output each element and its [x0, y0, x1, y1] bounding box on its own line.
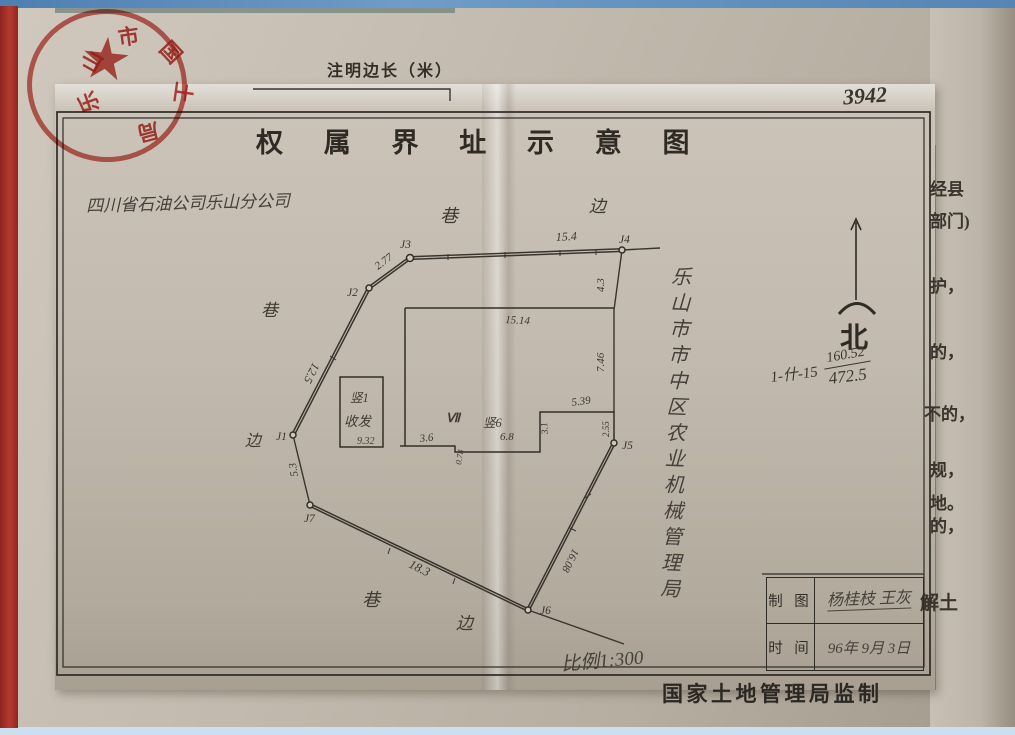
point-label-j1: J1	[276, 431, 287, 443]
seal-char: 局	[135, 118, 161, 144]
small-building-label2: 收发	[344, 414, 372, 429]
header-note: 注明边长（米）	[327, 57, 453, 81]
margin-fragment: 解土	[920, 588, 958, 615]
edge-label-2-55: 2.55	[601, 421, 611, 437]
header-bracket-line	[253, 89, 450, 101]
margin-fragment: 规，	[930, 456, 964, 481]
edge-labels: 12.5 2.77 15.4 4.3 15.14 7.46 5.39 2.55 …	[287, 229, 611, 579]
margin-fragment: 部门)	[930, 207, 970, 232]
seal-char: 土	[170, 81, 194, 105]
street-label-left-side: 边	[245, 432, 263, 450]
point-label-j7: J7	[304, 513, 316, 525]
north-arrow	[839, 219, 875, 314]
point-label-j5: J5	[622, 440, 633, 452]
point-label-j4: J4	[619, 234, 630, 246]
table-value-drafter: 杨桂枝 王灰	[827, 590, 912, 612]
edge-label-j5j6: 16.08	[559, 547, 581, 575]
title-block-table: 制 图 杨桂枝 王灰 时 间 96年 9月 3日	[766, 577, 924, 671]
scanned-document-photo: J1 J2 J3 J4 J5 J6 J7 12.5 2.77 15.4 4.3 …	[0, 0, 1015, 735]
margin-fragment: 的，	[930, 338, 964, 363]
table-label-drafter: 制 图	[767, 578, 815, 624]
table-value-date: 96年 9月 3日	[828, 637, 911, 658]
point-label-j3: J3	[400, 239, 411, 251]
seal-char: 市	[117, 26, 141, 50]
street-label-bottom-lane: 巷	[362, 590, 382, 610]
calc-fraction: 160.52 472.5	[821, 346, 872, 387]
edge-label-3-6: 3.6	[418, 432, 434, 446]
edge-label-j7j1: 5.3	[287, 461, 301, 477]
point-labels: J1 J2 J3 J4 J5 J6 J7	[276, 234, 633, 617]
point-label-j2: J2	[347, 287, 358, 299]
edge-label-rect-right: 7.46	[595, 352, 607, 372]
street-label-left-lane: 巷	[261, 301, 280, 320]
street-label-bottom-side: 边	[456, 614, 475, 633]
street-label-top-side: 边	[589, 197, 608, 216]
left-party-name: 四川省石油公司乐山分公司	[86, 186, 291, 216]
seal-char: 乐	[76, 88, 103, 115]
edge-label-rect-top: 15.14	[505, 314, 531, 327]
small-building-label1: 竖1	[350, 391, 369, 405]
margin-fragment: 的，	[930, 512, 964, 537]
edge-label-j3j4: 15.4	[555, 229, 577, 244]
big-building-label: 竖6	[483, 416, 503, 430]
edge-label-5-39: 5.39	[571, 394, 592, 409]
edge-label-3-1: 3.1	[540, 422, 551, 436]
small-building-area: 9.32	[357, 436, 375, 447]
building-outlines	[340, 308, 614, 452]
calc-prefix: 1-什-15	[769, 360, 819, 387]
margin-fragment: 地。	[930, 489, 964, 514]
page-title: 权 属 界 址 示 意 图	[256, 121, 691, 160]
edge-label-4-3: 4.3	[595, 278, 607, 292]
footer-supervised-by: 国家土地管理局监制	[662, 678, 883, 708]
margin-fragment: 护，	[930, 272, 964, 297]
point-label-j6: J6	[540, 605, 551, 617]
edge-label-0-78: 0.78	[453, 448, 466, 465]
edge-label-6-8: 6.8	[500, 431, 514, 443]
street-label-top-lane: 巷	[440, 206, 460, 226]
big-building-mark: Ⅶ	[446, 411, 462, 425]
margin-fragment: 不的，	[924, 400, 975, 425]
margin-fragment: 经县	[930, 175, 964, 200]
table-label-date: 时 间	[767, 624, 815, 670]
sheet-number: 3942	[842, 81, 888, 110]
